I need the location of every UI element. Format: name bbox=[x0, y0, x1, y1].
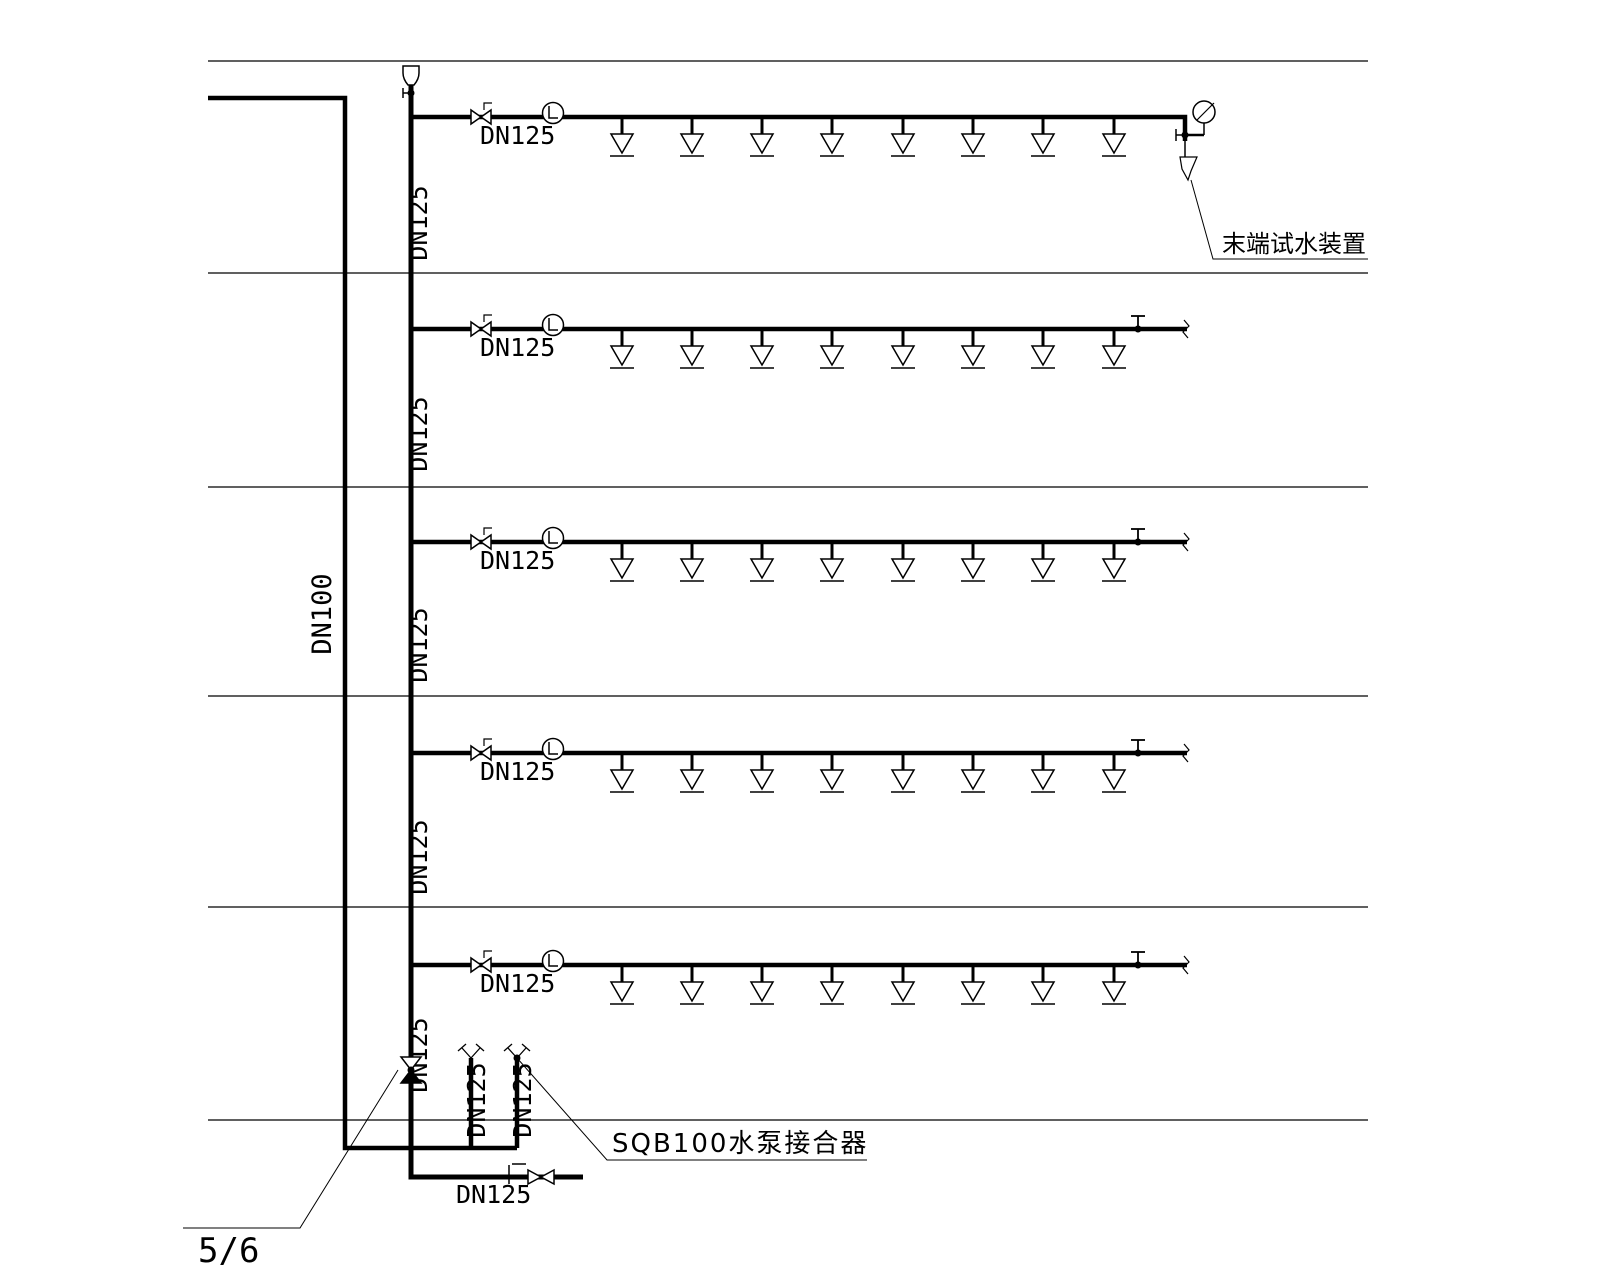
background bbox=[0, 0, 1600, 1280]
sheet-ref-label: 5/6 bbox=[198, 1231, 259, 1271]
check-valve-icon bbox=[408, 1067, 415, 1074]
air-vent-icon bbox=[403, 66, 419, 85]
pressure-gauge-icon bbox=[1193, 101, 1215, 123]
dn100-label: DN100 bbox=[307, 573, 338, 654]
branch-test-valve-icon bbox=[1135, 539, 1142, 546]
branch-size-label: DN125 bbox=[480, 969, 555, 998]
riser-size-label: DN125 bbox=[404, 607, 433, 682]
bottom-run-size-label: DN125 bbox=[456, 1180, 531, 1209]
branch-test-valve-icon bbox=[1135, 750, 1142, 757]
pump-coupling-label: SQB100水泵接合器 bbox=[612, 1129, 868, 1159]
branch-size-label: DN125 bbox=[480, 121, 555, 150]
end-test-device-label: 末端试水装置 bbox=[1222, 230, 1366, 258]
branch-size-label: DN125 bbox=[480, 546, 555, 575]
riser-size-label: DN125 bbox=[404, 185, 433, 260]
branch-test-valve-icon bbox=[1135, 962, 1142, 969]
pump-riser-label: DN125 bbox=[508, 1062, 537, 1137]
sprinkler-riser-diagram: DN100DN125DN125DN125DN125DN125DN125DN125… bbox=[0, 0, 1600, 1280]
branch-size-label: DN125 bbox=[480, 757, 555, 786]
riser-size-label: DN125 bbox=[404, 819, 433, 894]
vent-valve-icon bbox=[408, 90, 415, 97]
pump-riser-label: DN125 bbox=[462, 1062, 491, 1137]
drawing-canvas: DN100DN125DN125DN125DN125DN125DN125DN125… bbox=[0, 0, 1600, 1280]
branch-size-label: DN125 bbox=[480, 333, 555, 362]
riser-size-label: DN125 bbox=[404, 396, 433, 471]
branch-test-valve-icon bbox=[1135, 326, 1142, 333]
